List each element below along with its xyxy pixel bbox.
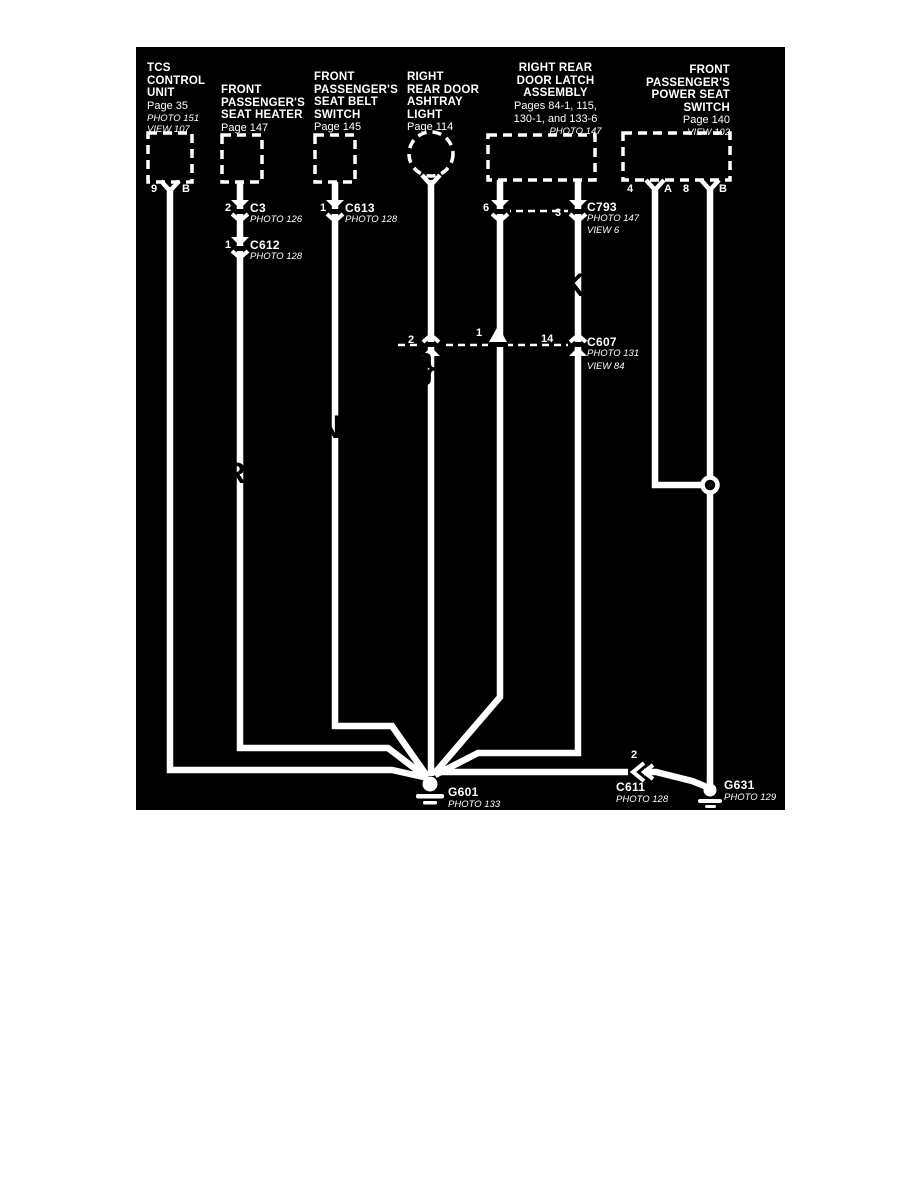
g601-photo-ref: PHOTO 133 <box>448 800 500 810</box>
power-seat-page: Page 140 <box>588 114 730 127</box>
c613-photo-ref: PHOTO 128 <box>345 215 397 225</box>
tcs-pin-9: 9 <box>151 184 157 195</box>
c613-pin-number: 1 <box>320 203 326 214</box>
wire-seat-belt-to-g601 <box>335 182 427 776</box>
c607-view-ref: VIEW 84 <box>587 362 625 372</box>
seat-heater-title: FRONT PASSENGER'S SEAT HEATER <box>221 84 305 122</box>
wire-smudge-4: K <box>562 269 585 301</box>
c611-photo-ref: PHOTO 128 <box>616 795 668 805</box>
ashtray-label: RIGHT REAR DOOR ASHTRAY LIGHT Page 114 <box>407 71 479 134</box>
wire-smudge-3: } <box>422 350 435 384</box>
c3-name: C3 <box>250 202 266 214</box>
c793-view-ref: VIEW 6 <box>587 226 619 236</box>
power-seat-pin-b: B <box>719 184 727 195</box>
power-seat-pin-4: 4 <box>627 184 633 195</box>
door-latch-box <box>488 135 595 180</box>
c611-name: C611 <box>616 781 645 793</box>
c793-pin-3: 3 <box>555 208 561 219</box>
power-seat-title: FRONT PASSENGER'S POWER SEAT SWITCH <box>588 64 730 114</box>
seat-belt-label: FRONT PASSENGER'S SEAT BELT SWITCH Page … <box>314 71 398 134</box>
tcs-photo-ref: PHOTO 151 <box>147 113 205 125</box>
c607-pin1-gap <box>488 342 508 347</box>
tcs-view-ref: VIEW 107 <box>147 124 205 136</box>
c607-name: C607 <box>587 336 617 348</box>
c607-pin-1: 1 <box>476 328 482 339</box>
wire-tcs-to-g601 <box>170 187 428 778</box>
c612-name: C612 <box>250 239 280 251</box>
power-seat-pin-8: 8 <box>683 184 689 195</box>
connector-terminals-up <box>422 326 587 356</box>
wire-smudge-1: R <box>224 459 246 489</box>
seat-belt-title: FRONT PASSENGER'S SEAT BELT SWITCH <box>314 71 398 121</box>
g631-photo-ref: PHOTO 129 <box>724 793 776 803</box>
g631-name: G631 <box>724 779 755 791</box>
ashtray-light-circle <box>409 132 453 176</box>
c793-name: C793 <box>587 201 617 213</box>
document-page: TCS CONTROL UNIT Page 35 PHOTO 151 VIEW … <box>0 0 918 1188</box>
wire-junction-ring <box>703 478 718 493</box>
g601-ground-icon <box>416 777 444 805</box>
tcs-terminal-icon <box>161 181 179 191</box>
seat-heater-label: FRONT PASSENGER'S SEAT HEATER Page 147 <box>221 84 305 135</box>
seat-belt-page: Page 145 <box>314 121 398 134</box>
g601-name: G601 <box>448 786 479 798</box>
power-seat-switch-box <box>623 133 730 180</box>
c607-pin-14: 14 <box>541 334 553 345</box>
seat-heater-box <box>222 135 262 182</box>
wire-smudge-2: N <box>318 411 341 443</box>
wiring-diagram-graphics <box>136 47 785 810</box>
c607-pin1-terminal-icon <box>489 326 507 342</box>
power-seat-pin-a: A <box>664 184 672 195</box>
c793-pin-6: 6 <box>483 203 489 214</box>
seat-belt-switch-box <box>315 135 355 182</box>
seat-heater-page: Page 147 <box>221 122 305 135</box>
c793-photo-ref: PHOTO 147 <box>587 214 639 224</box>
tcs-page: Page 35 <box>147 100 205 113</box>
c3-pin-number: 2 <box>225 203 231 214</box>
c612-pin-number: 1 <box>225 240 231 251</box>
wire-latch-pin3-to-g601 <box>435 180 578 775</box>
c612-photo-ref: PHOTO 128 <box>250 252 302 262</box>
power-seat-label: FRONT PASSENGER'S POWER SEAT SWITCH Page… <box>588 64 730 139</box>
connector-terminals-down <box>231 200 587 258</box>
c607-photo-ref: PHOTO 131 <box>587 349 639 359</box>
tcs-pin-b: B <box>182 184 190 195</box>
tcs-box <box>148 133 192 182</box>
wire-latch-pin6-to-g601 <box>434 180 500 774</box>
ashtray-page: Page 114 <box>407 121 479 134</box>
ashtray-title: RIGHT REAR DOOR ASHTRAY LIGHT <box>407 71 479 121</box>
c607-pin-2: 2 <box>408 335 414 346</box>
wire-power-seat-a <box>655 187 710 485</box>
c611-pin-number: 2 <box>631 750 637 761</box>
wiring-diagram-panel: TCS CONTROL UNIT Page 35 PHOTO 151 VIEW … <box>136 47 785 810</box>
tcs-title: TCS CONTROL UNIT <box>147 62 205 100</box>
c3-photo-ref: PHOTO 126 <box>250 215 302 225</box>
c613-name: C613 <box>345 202 375 214</box>
tcs-label: TCS CONTROL UNIT Page 35 PHOTO 151 VIEW … <box>147 62 205 136</box>
power-seat-view-ref: VIEW 102 <box>588 127 730 139</box>
